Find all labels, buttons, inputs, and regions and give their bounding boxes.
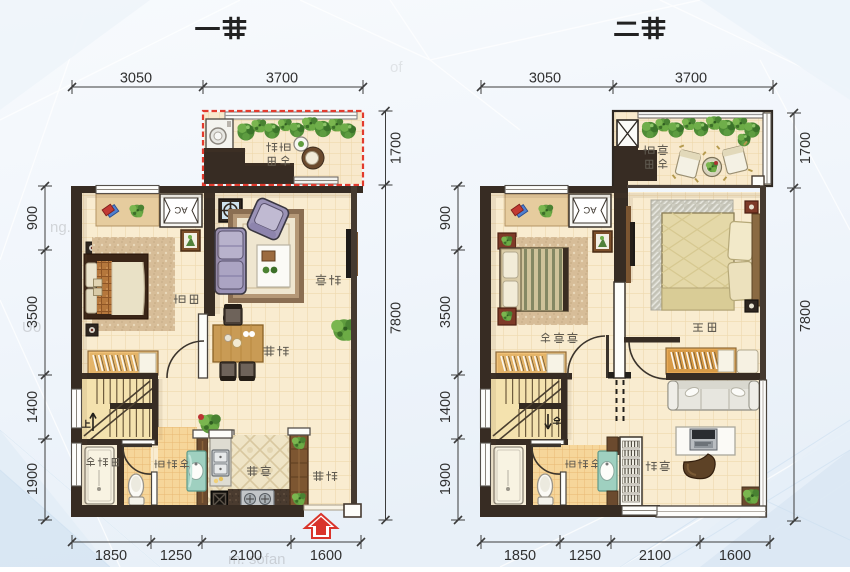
svg-text:2100: 2100 [230, 548, 262, 564]
svg-text:1400: 1400 [438, 391, 454, 423]
svg-text:7800: 7800 [798, 300, 814, 332]
svg-text:2100: 2100 [639, 548, 671, 564]
svg-text:3050: 3050 [529, 71, 561, 87]
svg-text:1250: 1250 [160, 548, 192, 564]
svg-text:1600: 1600 [719, 548, 751, 564]
svg-text:900: 900 [438, 206, 454, 230]
svg-text:3700: 3700 [675, 71, 707, 87]
svg-text:1700: 1700 [798, 132, 814, 164]
svg-text:3050: 3050 [120, 71, 152, 87]
svg-text:1700: 1700 [389, 132, 405, 164]
svg-text:AC: AC [174, 204, 187, 215]
svg-text:of: of [390, 59, 403, 76]
svg-text:1900: 1900 [25, 463, 41, 495]
svg-text:1400: 1400 [25, 391, 41, 423]
svg-text:3500: 3500 [25, 296, 41, 328]
svg-text:1850: 1850 [504, 548, 536, 564]
svg-text:7800: 7800 [389, 302, 405, 334]
svg-text:1850: 1850 [95, 548, 127, 564]
svg-text:1600: 1600 [310, 548, 342, 564]
svg-text:900: 900 [25, 206, 41, 230]
svg-text:3700: 3700 [266, 71, 298, 87]
svg-text:1250: 1250 [569, 548, 601, 564]
svg-text:AC: AC [583, 204, 596, 215]
svg-text:3500: 3500 [438, 296, 454, 328]
svg-text:1900: 1900 [438, 463, 454, 495]
